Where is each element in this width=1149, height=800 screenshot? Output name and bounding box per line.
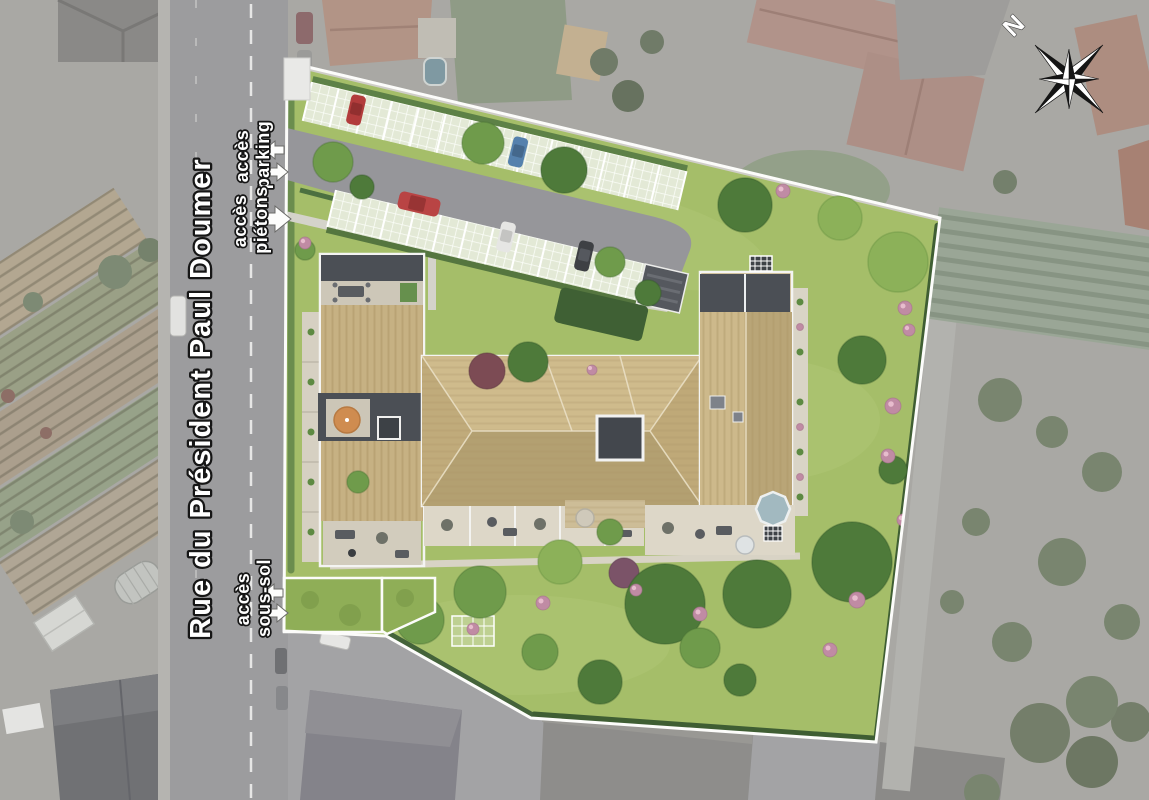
flat-roof-north [321, 255, 423, 281]
parasol [736, 536, 754, 554]
building-east [700, 256, 808, 518]
tree [640, 30, 664, 54]
south-terrace-west [323, 521, 421, 565]
tree [1066, 736, 1118, 788]
skylight [378, 417, 400, 439]
access-parking-label-line2: parking [253, 121, 273, 190]
tree [23, 292, 43, 312]
bush [40, 427, 52, 439]
planter [400, 283, 417, 302]
pool-deck [418, 18, 456, 58]
parked-car [296, 12, 313, 44]
access-parking-label-line1: accès [232, 130, 252, 183]
utility-grid [764, 526, 782, 541]
access-pedestrian-label-line2: piétons [251, 186, 271, 254]
access-basement-label-line1: accès [233, 573, 253, 626]
terrace-table [338, 286, 364, 297]
tree [590, 48, 618, 76]
neighbor-lawn-top [450, 0, 572, 104]
site-plan-map: Rue du Président Paul Doumer accès parki… [0, 0, 1149, 800]
parked-van [170, 296, 186, 336]
parked-car [276, 686, 288, 710]
access-pedestrian-label-line1: accès [230, 195, 250, 248]
spa-pool [756, 492, 790, 526]
building-central [422, 356, 702, 506]
tree [993, 170, 1017, 194]
street-name-label: Rue du Président Paul Doumer [185, 157, 217, 638]
neighbor-house-top [322, 0, 432, 66]
tree [98, 255, 132, 289]
roof-hatch [710, 396, 725, 409]
tree [612, 80, 644, 112]
site-plan-canvas: Rue du Président Paul Doumer accès parki… [0, 0, 1149, 800]
courtyard-skylight [597, 416, 643, 460]
tree [1010, 703, 1070, 763]
vent-grid-north [750, 256, 772, 271]
parked-car [275, 648, 287, 674]
building-west [302, 254, 424, 566]
neighbor-garage [284, 58, 310, 100]
sidewalk [158, 0, 172, 800]
parasol [576, 509, 594, 527]
bush [1, 389, 15, 403]
neighbor-pool [424, 58, 446, 85]
access-basement-label-line2: sous-sol [254, 559, 274, 637]
roof-hatch [733, 412, 743, 422]
tree [10, 510, 34, 534]
